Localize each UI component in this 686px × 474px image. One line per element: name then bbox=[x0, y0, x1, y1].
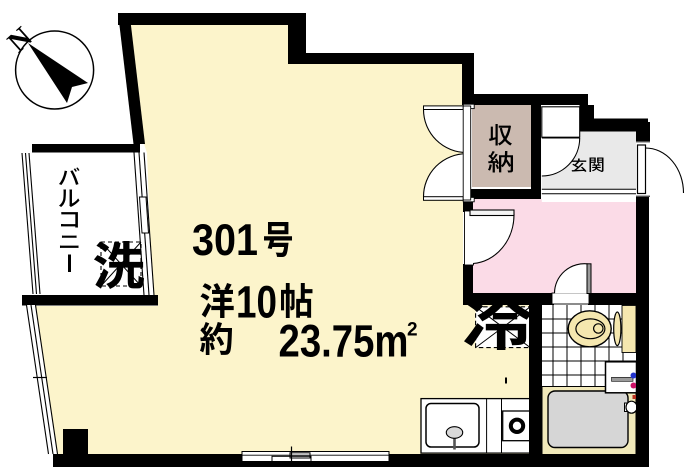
svg-text:23.75m: 23.75m bbox=[279, 316, 409, 367]
svg-text:301: 301 bbox=[192, 216, 258, 265]
svg-text:2: 2 bbox=[407, 320, 418, 341]
svg-text:10: 10 bbox=[236, 277, 277, 328]
